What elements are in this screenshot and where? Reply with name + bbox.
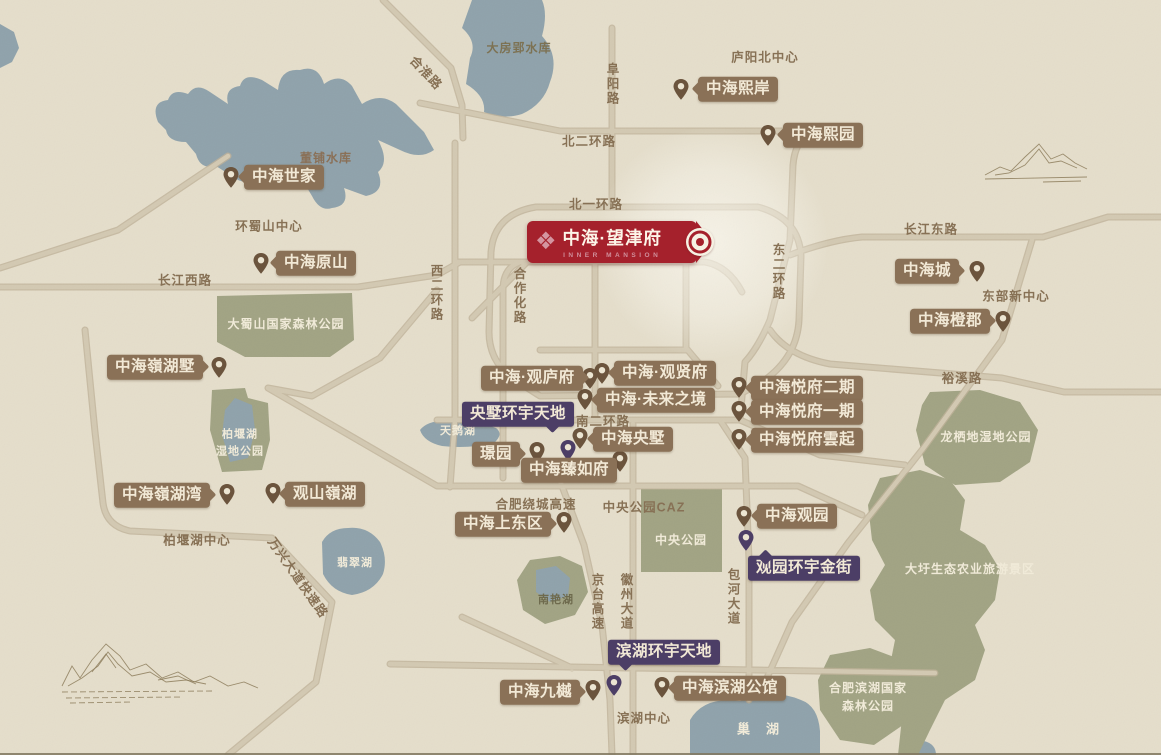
area-name-label: 翡翠湖 <box>337 555 373 572</box>
area-name-label: 南艳湖 <box>538 592 574 609</box>
district-name-label: 滨湖中心 <box>617 708 671 727</box>
project-label[interactable]: 观山嶺湖 <box>285 482 365 507</box>
lake-west-edge <box>0 24 19 68</box>
project-label[interactable]: 中海橙郡 <box>910 309 990 334</box>
road-name-label: 裕溪路 <box>942 368 983 387</box>
mountain-sketch-icon <box>62 644 258 703</box>
mountain-sketch-icon <box>985 144 1087 182</box>
project-label[interactable]: 中海·观庐府 <box>481 366 583 391</box>
project-label[interactable]: 璟园 <box>472 442 520 467</box>
target-dot <box>696 238 704 246</box>
project-banner[interactable]: ❖ 中海·望津府 INNER MANSION <box>527 221 697 263</box>
area-name-label: 合肥滨湖国家 森林公园 <box>829 679 907 715</box>
location-pin-icon[interactable] <box>606 674 623 697</box>
area-name-label: 大房郢水库 <box>486 39 551 57</box>
landmark-label[interactable]: 滨湖环宇天地 <box>608 640 720 665</box>
road-name-label: 西二环路 <box>427 264 446 322</box>
district-name-label: 庐阳北中心 <box>731 47 799 66</box>
road-name-label: 包河大道 <box>724 568 743 626</box>
area-name-label: 大圩生态农业旅游景区 <box>905 560 1035 578</box>
location-pin-icon[interactable] <box>760 124 777 147</box>
project-label[interactable]: 中海滨湖公馆 <box>674 676 786 701</box>
road-name-label: 长江西路 <box>158 270 212 289</box>
banner-subtitle: INNER MANSION <box>563 252 661 259</box>
road-name-label: 长江东路 <box>904 219 958 238</box>
location-pin-icon[interactable] <box>995 310 1012 333</box>
location-pin-icon[interactable] <box>211 356 228 379</box>
road-name-label: 合作化路 <box>510 267 529 325</box>
project-label[interactable]: 中海九樾 <box>500 680 580 705</box>
location-pin-icon[interactable] <box>223 166 240 189</box>
project-label[interactable]: 中海原山 <box>276 251 356 276</box>
banner-text: 中海·望津府 INNER MANSION <box>563 225 662 259</box>
road-name-label: 北二环路 <box>562 131 616 150</box>
brand-logo-icon: ❖ <box>535 230 557 254</box>
project-label[interactable]: 中海臻如府 <box>521 458 617 483</box>
district-name-label: 柏堰湖中心 <box>163 530 231 549</box>
district-name-label: 环蜀山中心 <box>235 216 303 235</box>
area-name-label: 大蜀山国家森林公园 <box>227 315 344 333</box>
project-label[interactable]: 中海嶺湖墅 <box>107 355 203 380</box>
map-canvas[interactable]: 中海世家中海熙岸中海熙园中海原山中海城中海橙郡中海嶺湖墅中海·观庐府中海·观贤府… <box>0 0 1161 755</box>
project-label[interactable]: 中海熙园 <box>783 123 863 148</box>
target-location-icon <box>686 228 714 256</box>
location-pin-icon[interactable] <box>253 252 270 275</box>
project-label[interactable]: 中海嶺湖湾 <box>114 483 210 508</box>
project-label[interactable]: 中海·未来之境 <box>597 388 715 413</box>
area-name-label: 龙栖地湿地公园 <box>940 428 1031 446</box>
project-label[interactable]: 中海·观贤府 <box>614 361 716 386</box>
area-name-label: 中央公园 <box>655 531 707 549</box>
project-label[interactable]: 中海观园 <box>757 504 837 529</box>
road-name-label: 徽州大道 <box>617 573 636 631</box>
location-pin-icon[interactable] <box>969 260 986 283</box>
location-pin-icon[interactable] <box>738 529 755 552</box>
project-label[interactable]: 中海熙岸 <box>698 77 778 102</box>
location-pin-icon[interactable] <box>585 679 602 702</box>
road-name-label: 合肥绕城高速 <box>495 494 576 513</box>
lake-dafangying-reservoir <box>462 0 554 117</box>
project-label[interactable]: 中海悦府一期 <box>751 400 863 425</box>
location-pin-icon[interactable] <box>556 511 573 534</box>
landmark-label[interactable]: 央墅环宇天地 <box>462 402 574 427</box>
project-label[interactable]: 中海城 <box>895 259 959 284</box>
project-label[interactable]: 中海悦府雲起 <box>751 428 863 453</box>
location-pin-icon[interactable] <box>736 505 753 528</box>
location-pin-icon[interactable] <box>673 78 690 101</box>
area-name-label: 巢湖 <box>737 719 795 739</box>
project-label[interactable]: 中海悦府二期 <box>751 376 863 401</box>
road-name-label: 北一环路 <box>569 194 623 213</box>
landmark-label[interactable]: 观园环宇金街 <box>748 556 860 581</box>
project-label[interactable]: 中海上东区 <box>455 512 551 537</box>
road-name-label: 东二环路 <box>769 243 788 301</box>
area-name-label: 柏堰湖 湿地公园 <box>216 427 264 460</box>
road-name-label: 京台高速 <box>588 573 607 631</box>
road-name-label: 阜阳路 <box>603 62 622 106</box>
project-label[interactable]: 中海世家 <box>244 165 324 190</box>
banner-title: 中海·望津府 <box>563 225 662 250</box>
district-name-label: 中央公园CAZ <box>603 497 686 516</box>
project-label[interactable]: 中海央墅 <box>593 427 673 452</box>
district-name-label: 东部新中心 <box>982 286 1050 305</box>
location-pin-icon[interactable] <box>219 483 236 506</box>
